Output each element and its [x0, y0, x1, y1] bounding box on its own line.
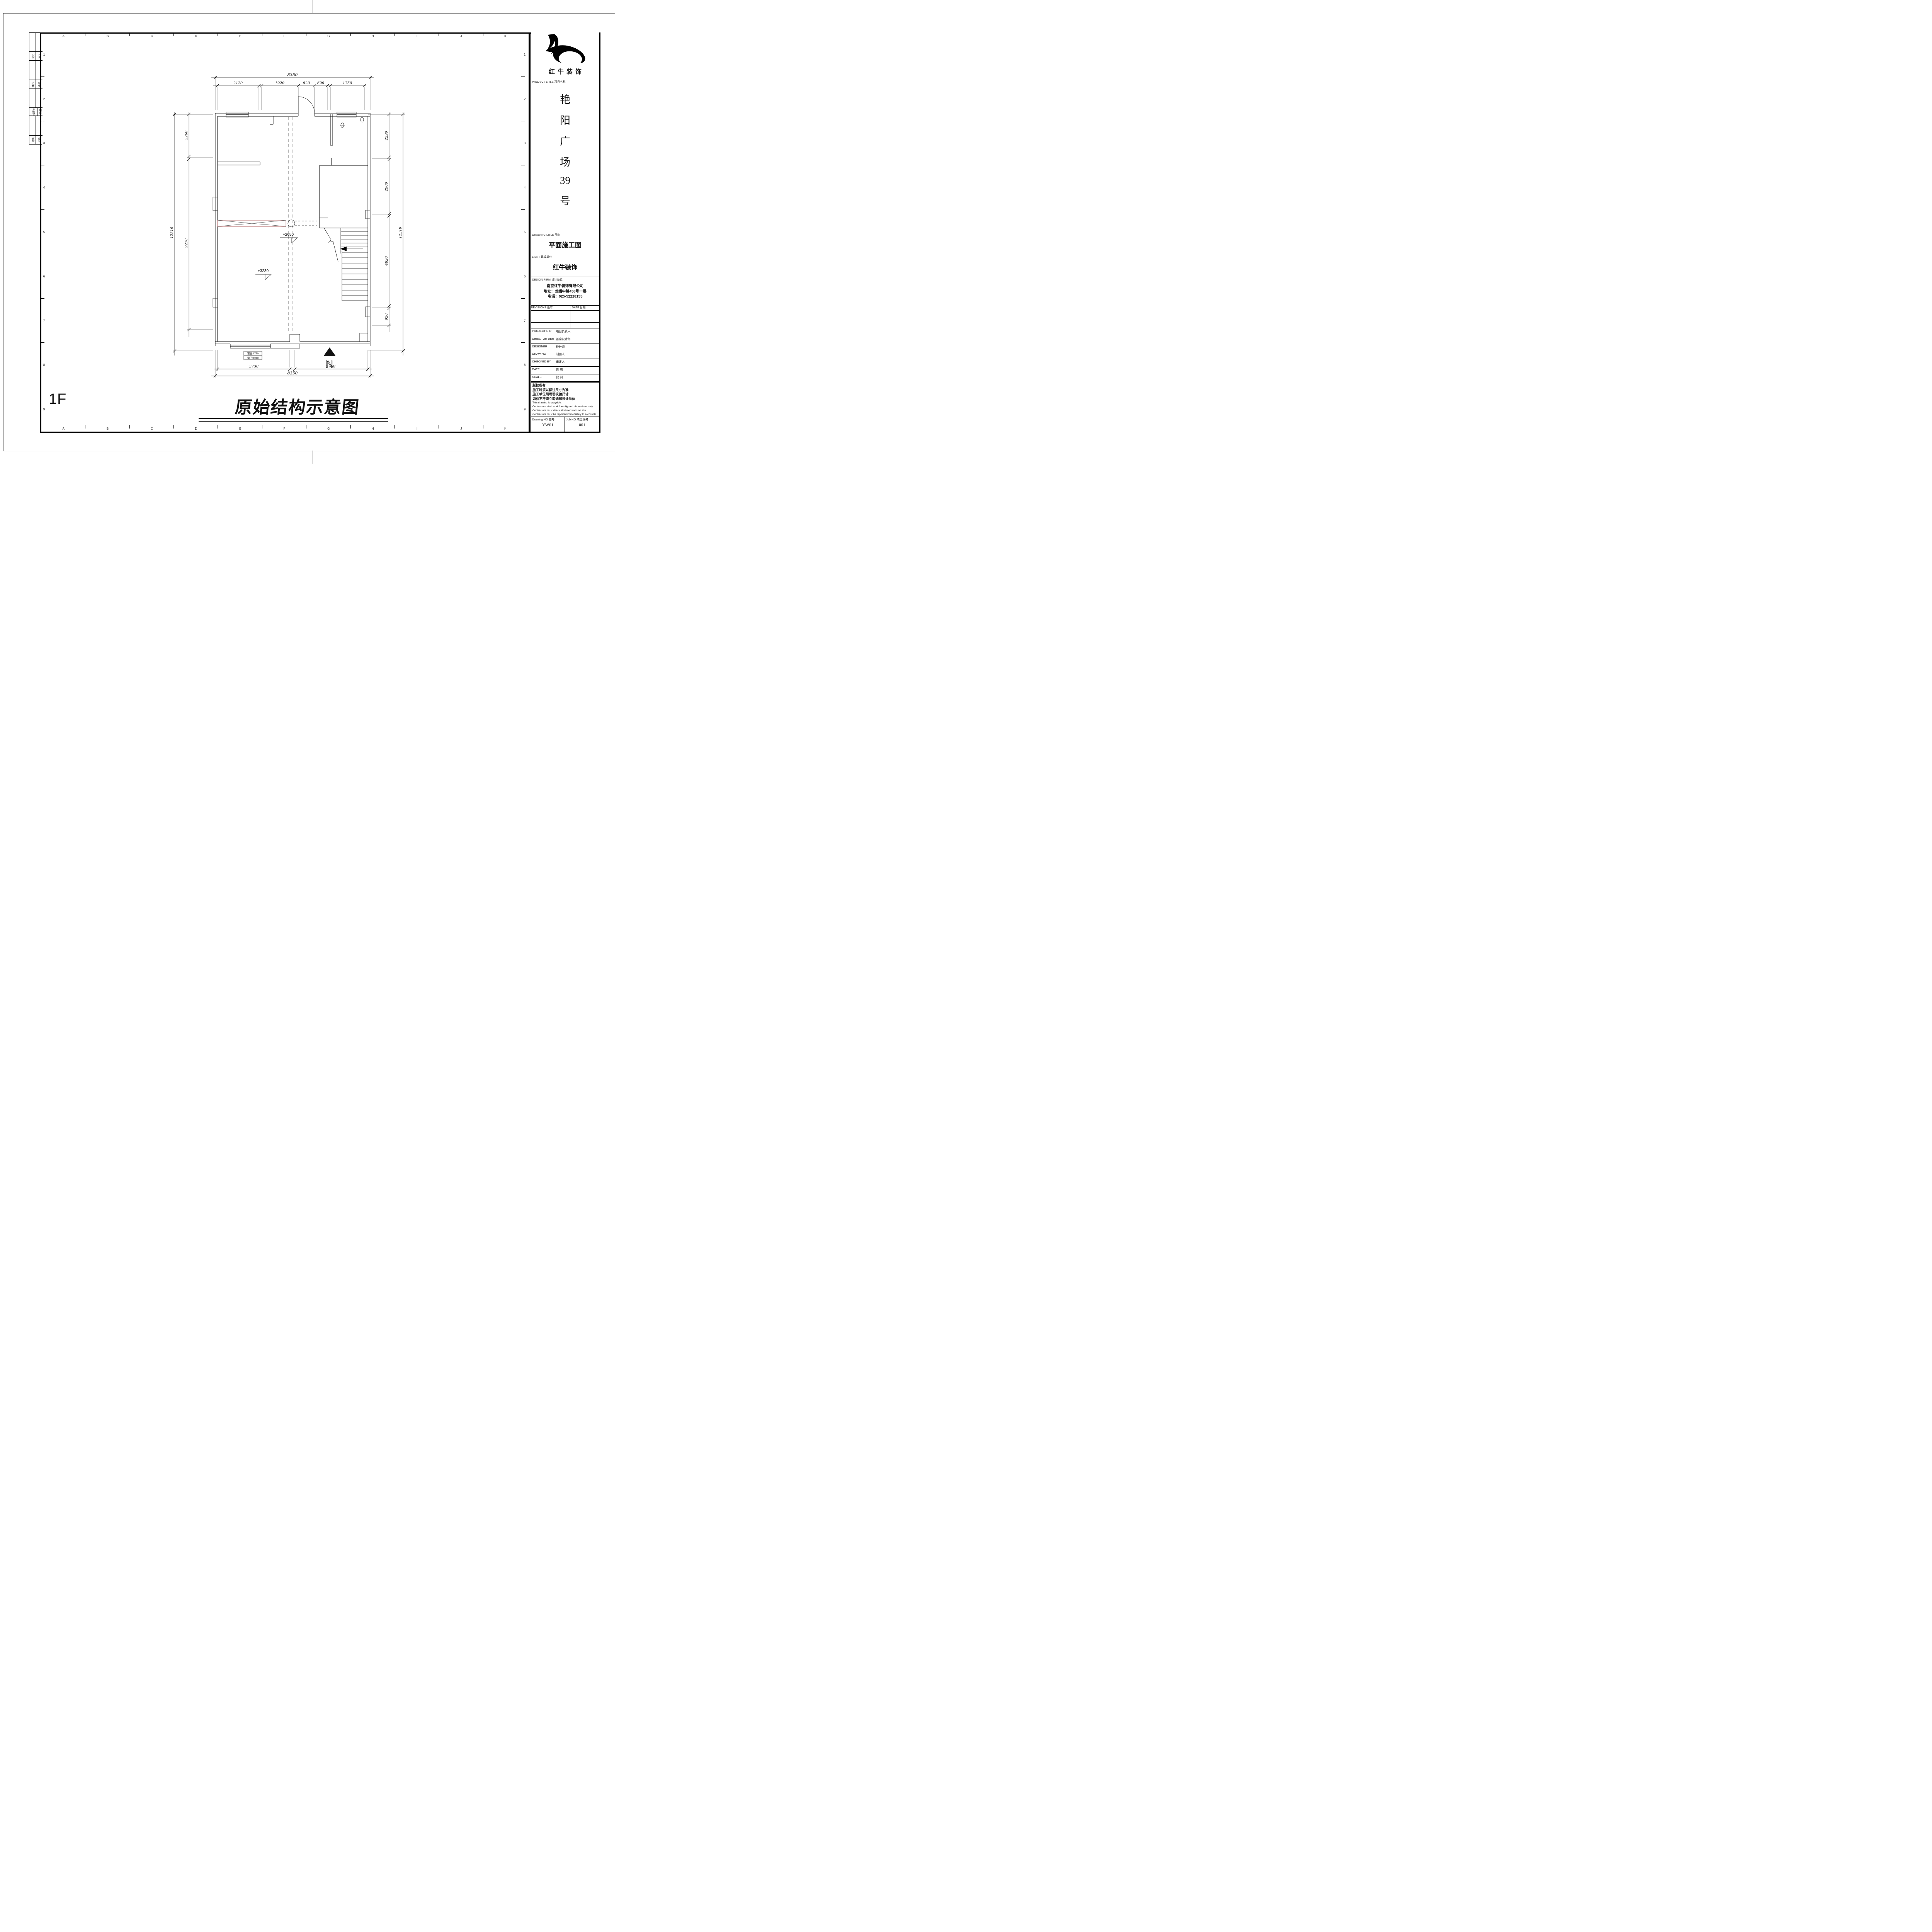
dim-label: 2290: [384, 131, 389, 141]
interior-walls: [218, 114, 368, 228]
level-label: +2650: [283, 233, 294, 237]
window-note-line1: 窗高:1760: [247, 352, 259, 355]
dim-label: 3760: [326, 364, 335, 369]
dim-label: 2900: [384, 182, 389, 192]
level-markers: +2650 +3230: [255, 233, 298, 280]
center-dashed-lines: [288, 117, 293, 333]
dim-label: 920: [384, 313, 389, 320]
dim-label: 1750: [343, 81, 352, 85]
title-underline-1: [199, 418, 388, 419]
bay-window: [230, 344, 270, 348]
level-label: +3230: [258, 269, 269, 273]
dimension-lines: [175, 78, 403, 376]
plan-walls: [215, 113, 370, 348]
dimension-ticks: [173, 76, 405, 378]
stair-direction-arrow: [340, 247, 347, 251]
title-underline-2: [199, 421, 388, 422]
dim-label: 2120: [233, 81, 243, 85]
window-note-line2: 窗下:1010: [247, 356, 259, 360]
stair: [324, 228, 368, 301]
north-arrow-icon: [323, 347, 336, 356]
dim-label: 2260: [184, 131, 189, 140]
dim-label: 690: [317, 81, 324, 85]
dim-label: 8350: [287, 371, 298, 376]
beam-dashed-continuation: [295, 221, 317, 226]
floor-label: 1F: [49, 391, 66, 408]
fixture-symbols: [340, 117, 364, 128]
page-title: 原始结构示意图: [200, 393, 396, 418]
dim-label: 4820: [384, 256, 389, 266]
entry-block: [270, 344, 300, 348]
drawing-sheet: ABCDEFGHIJK ABCDEFGHIJK 123456789 123456…: [0, 0, 618, 464]
column-circle: [288, 220, 295, 227]
dim-label: 12310: [170, 227, 174, 238]
wall-niche: [360, 333, 368, 342]
dim-label: 9270: [184, 238, 189, 248]
dim-label: 820: [303, 81, 310, 85]
plan-windows: [213, 112, 370, 317]
beam-x-brace: [218, 220, 286, 226]
dim-label: 3730: [249, 364, 259, 369]
door-swing: [298, 97, 315, 116]
dim-label: 8350: [287, 73, 298, 77]
stair-break-line: [324, 228, 338, 262]
dim-label: 12310: [398, 227, 403, 238]
window-note: 窗高:1760 窗下:1010: [244, 351, 262, 360]
dim-label: 1920: [275, 81, 284, 85]
wall-pier: [290, 334, 300, 342]
